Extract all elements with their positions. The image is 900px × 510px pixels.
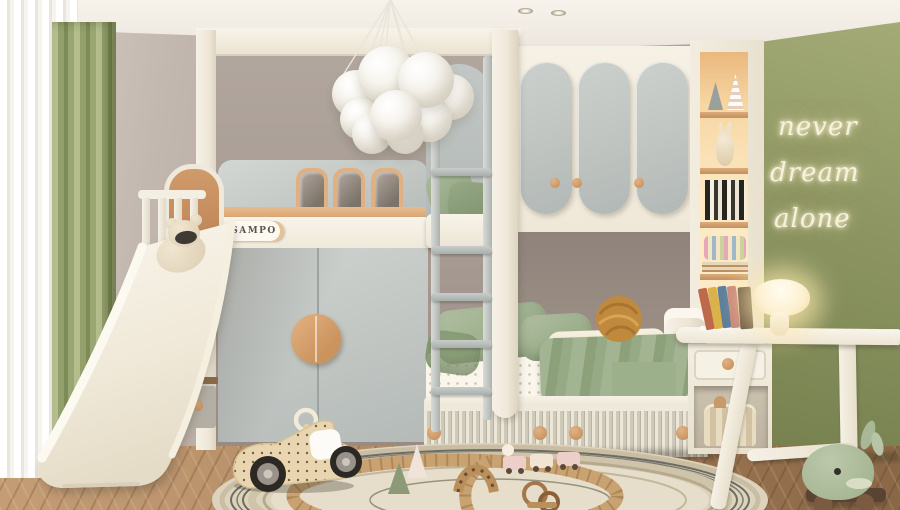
whale-eye (834, 468, 841, 475)
ladder-rung (431, 293, 492, 301)
playhouse-window (371, 168, 403, 212)
oval-wardrobe-door (520, 62, 572, 214)
pendant-ball (370, 90, 422, 142)
whale-fin (846, 478, 872, 489)
shelf-board (700, 112, 748, 118)
bedroom-scene: SAMPO (0, 0, 900, 510)
ceiling-spotlight (518, 8, 533, 14)
ride-on-car (222, 404, 372, 496)
ladder-rung (431, 387, 492, 395)
neon-word: alone (774, 204, 851, 234)
whale-wheel (856, 494, 874, 510)
ladder-rung (431, 340, 492, 348)
neon-word: dream (770, 158, 860, 188)
mushroom-lamp-stem (770, 312, 789, 336)
bunk-post-right (492, 30, 518, 418)
basket-toy-ear (714, 396, 726, 408)
shelf-board (700, 222, 748, 228)
oval-wardrobe-door (578, 62, 630, 214)
ladder-rung (431, 246, 492, 254)
bunny-figurine (716, 130, 734, 166)
knot-pillow (594, 294, 644, 344)
neon-wall-sign: never dream alone (766, 112, 894, 262)
ceiling-spotlight (551, 10, 566, 16)
ladder-rung (431, 168, 492, 176)
striped-box (704, 236, 746, 260)
wardrobe-knob (550, 178, 560, 188)
shelf-board (700, 168, 748, 174)
wardrobe-knob (572, 178, 582, 188)
mushroom-lamp-shade (752, 279, 810, 316)
desk-drawer-knob (722, 358, 734, 370)
book-row (705, 180, 745, 220)
neon-word: never (778, 112, 858, 142)
wardrobe-knob (634, 178, 644, 188)
ladder-rail (483, 56, 492, 420)
oval-wardrobe-door (636, 62, 688, 214)
